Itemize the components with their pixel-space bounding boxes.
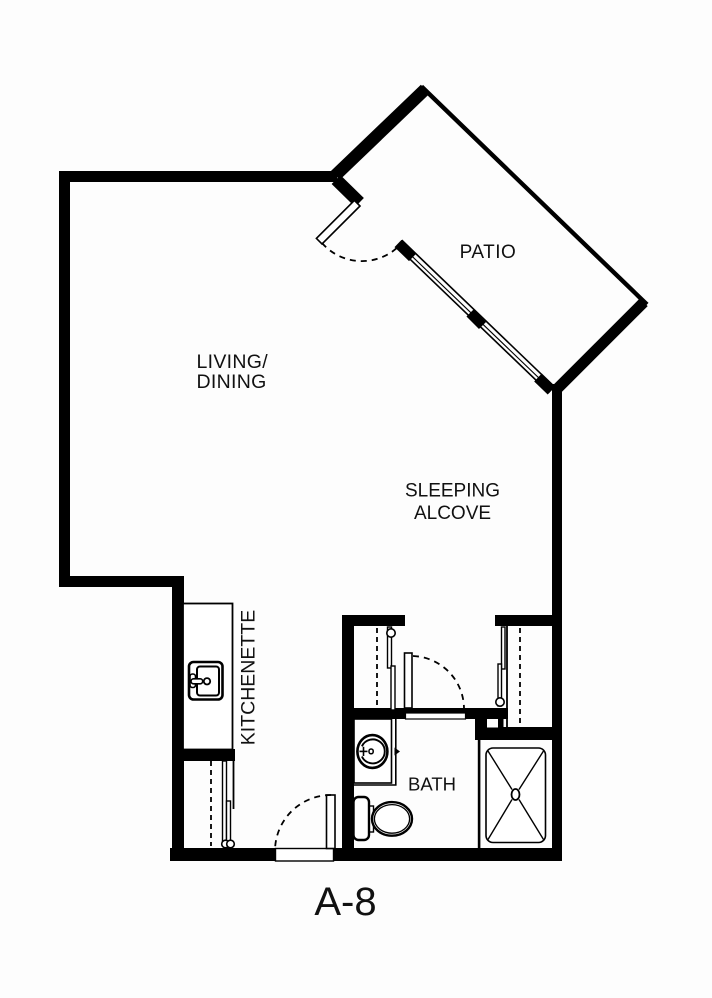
- svg-text:KITCHENETTE: KITCHENETTE: [238, 610, 260, 745]
- svg-text:SLEEPING: SLEEPING: [405, 481, 500, 502]
- svg-text:LIVING/: LIVING/: [197, 351, 269, 373]
- svg-text:BATH: BATH: [408, 774, 456, 795]
- svg-text:A-8: A-8: [314, 880, 376, 924]
- svg-text:ALCOVE: ALCOVE: [414, 503, 491, 524]
- svg-text:PATIO: PATIO: [460, 242, 517, 263]
- svg-text:DINING: DINING: [197, 371, 267, 393]
